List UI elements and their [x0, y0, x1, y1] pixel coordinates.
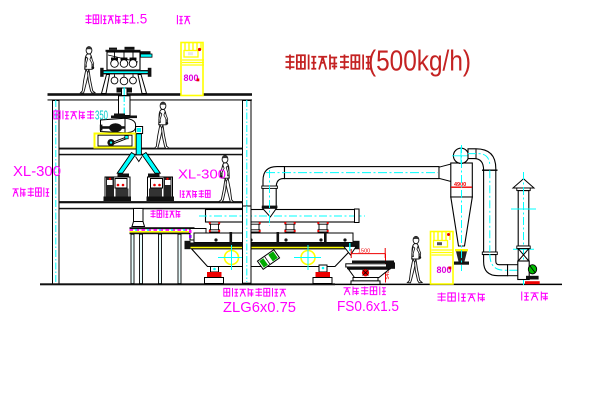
svg-text:1500: 1500 — [358, 249, 370, 255]
svg-text:ZLG6x0.75: ZLG6x0.75 — [223, 299, 296, 316]
svg-text:XL-300: XL-300 — [178, 167, 226, 182]
svg-text:800: 800 — [184, 73, 199, 83]
svg-text:1.5: 1.5 — [129, 12, 148, 27]
svg-text:FS0.6x1.5: FS0.6x1.5 — [337, 298, 399, 315]
svg-text:350: 350 — [95, 109, 108, 123]
svg-text:XL-300: XL-300 — [13, 164, 61, 180]
svg-text:(500kg/h): (500kg/h) — [368, 46, 471, 78]
